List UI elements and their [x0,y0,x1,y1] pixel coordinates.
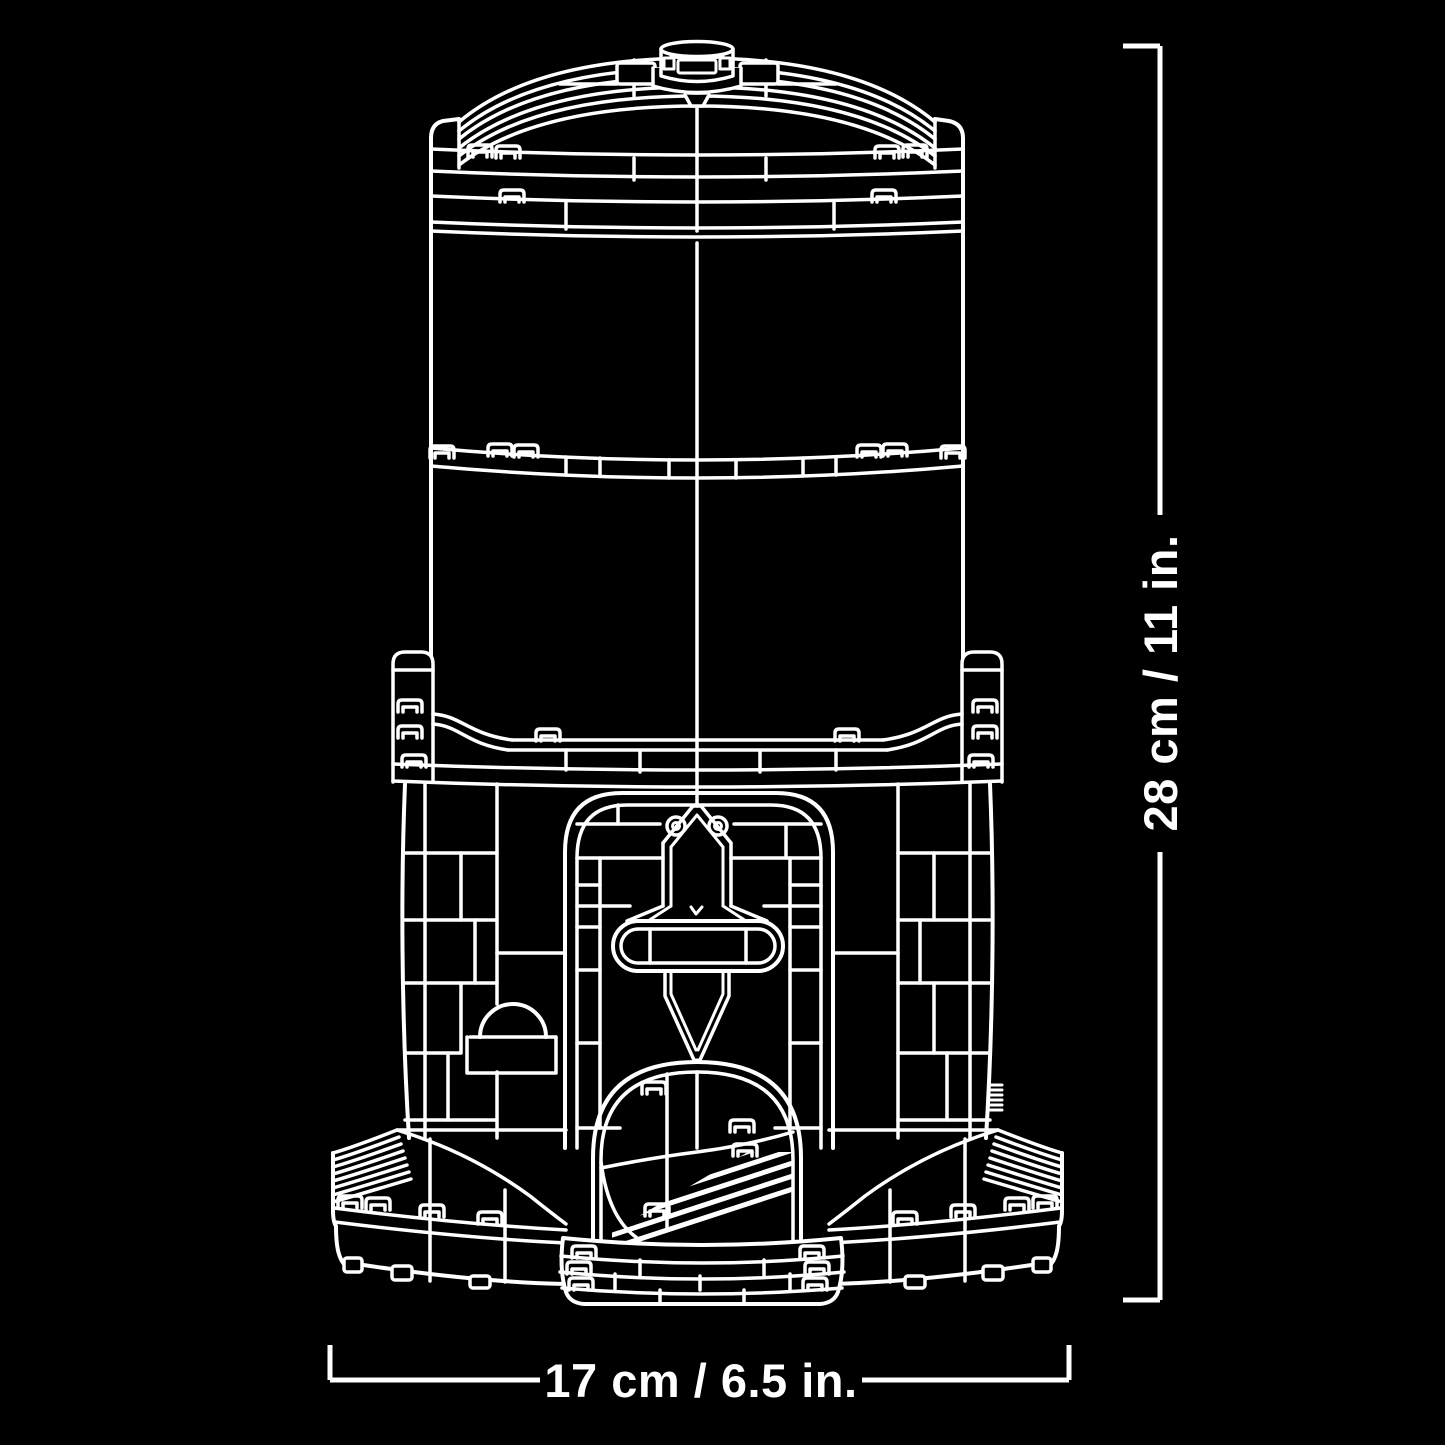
product-dimension-diagram: 28 cm / 11 in. 17 cm / 6.5 in. [0,0,1445,1445]
height-dimension-label: 28 cm / 11 in. [1134,534,1187,831]
front-tray [560,1238,844,1304]
background [0,0,1445,1445]
width-dimension-label: 17 cm / 6.5 in. [544,1354,857,1407]
handle-capsule [613,921,783,971]
